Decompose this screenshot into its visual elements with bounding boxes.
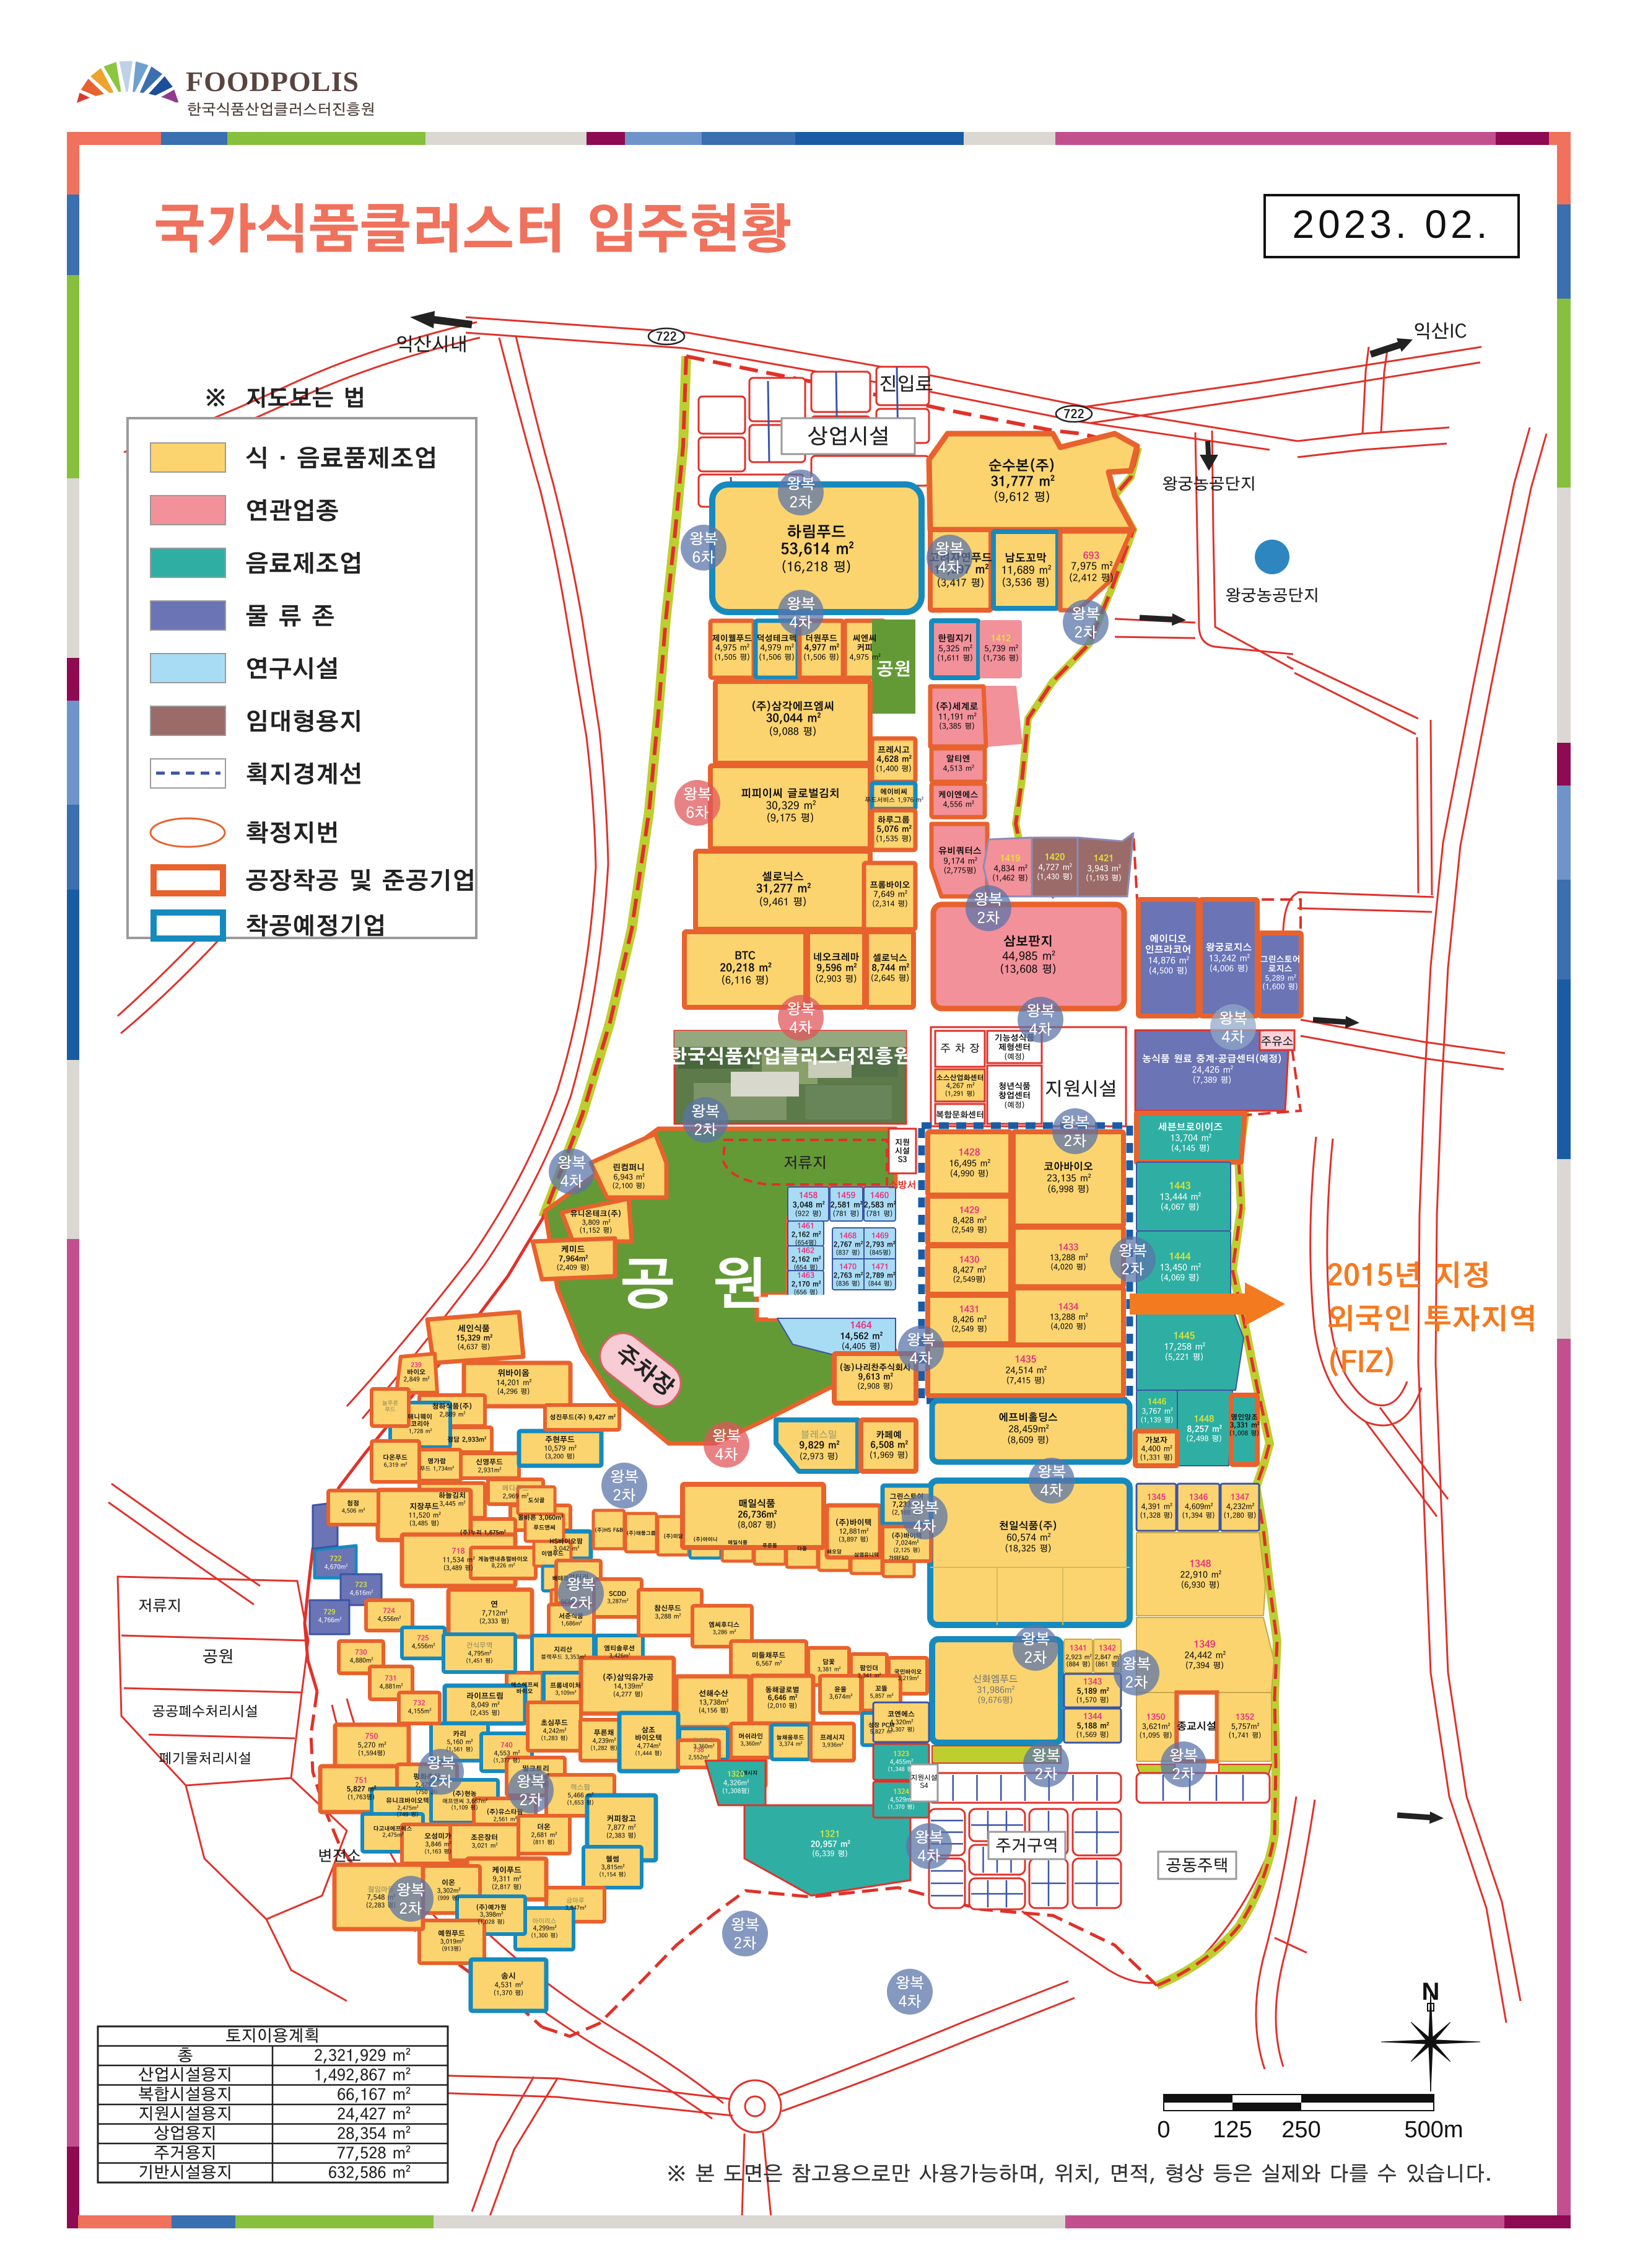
svg-text:FOODPOLIS: FOODPOLIS <box>186 66 359 97</box>
svg-text:2023. 02.: 2023. 02. <box>1293 202 1491 247</box>
svg-text:0: 0 <box>1157 2117 1170 2143</box>
svg-text:500m: 500m <box>1404 2117 1463 2143</box>
svg-text:N: N <box>1422 1978 1440 2005</box>
svg-text:125: 125 <box>1213 2117 1252 2143</box>
svg-text:250: 250 <box>1281 2117 1320 2143</box>
